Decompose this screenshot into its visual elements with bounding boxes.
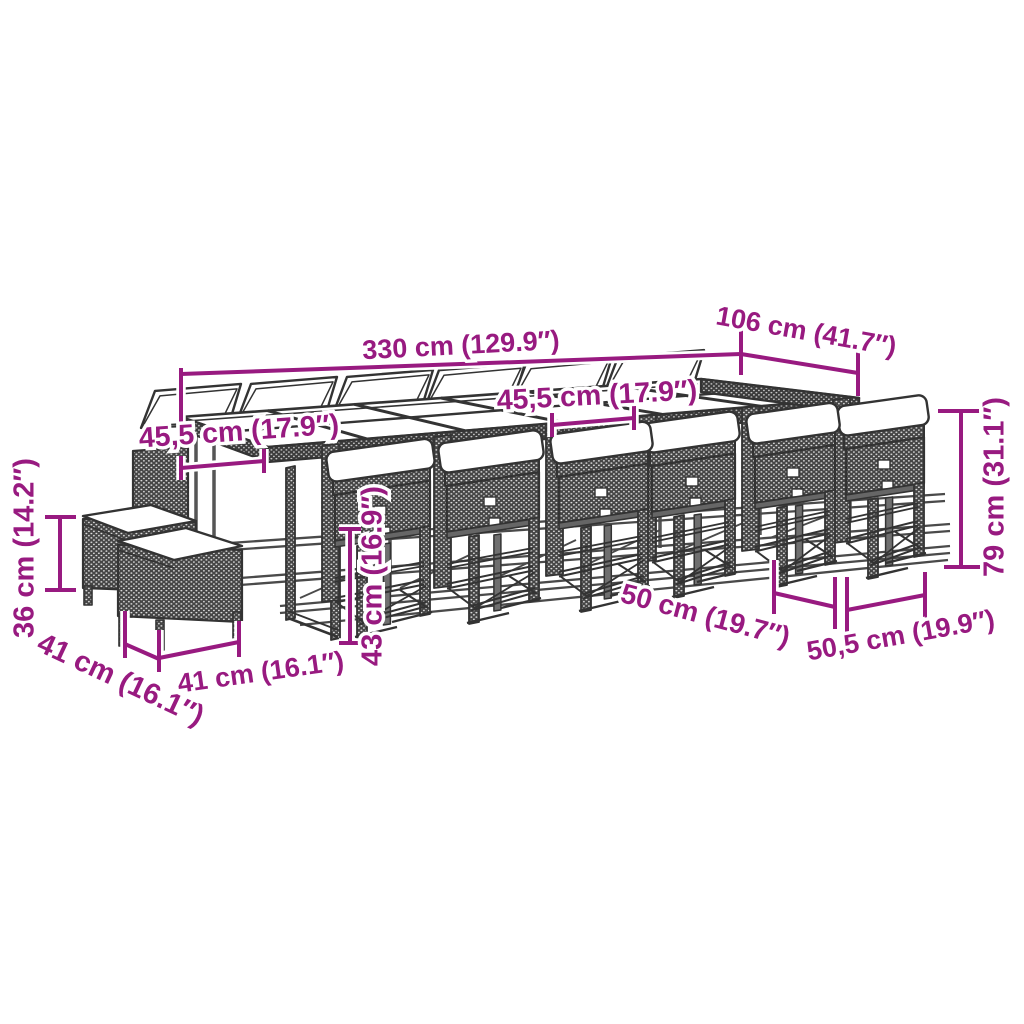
svg-text:43 cm (16.9″): 43 cm (16.9″) — [357, 486, 389, 666]
svg-text:79 cm (31.1″): 79 cm (31.1″) — [979, 397, 1011, 577]
svg-text:36 cm (14.2″): 36 cm (14.2″) — [9, 458, 41, 638]
